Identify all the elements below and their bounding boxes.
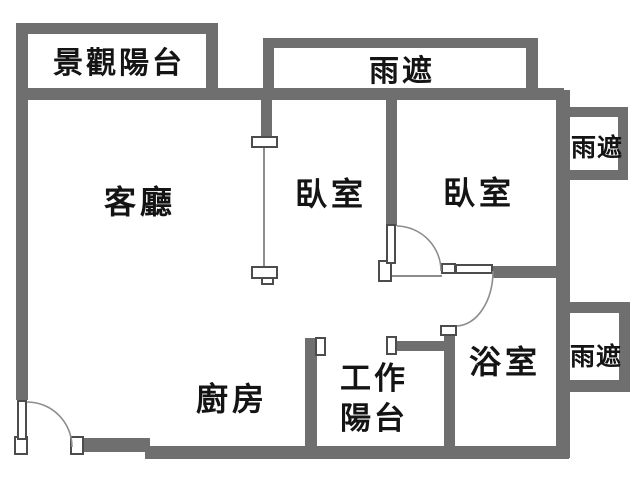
floor-plan: 景觀陽台 雨遮 客廳 臥室 臥室 雨遮 雨遮 浴室 廚房 工作 陽台 (0, 0, 640, 480)
room-label-work-balcony-line1: 工作 (340, 359, 408, 399)
wall-bottom-left (82, 438, 150, 452)
bathroom-wall-top-jamb (440, 325, 457, 336)
wall-balcony-top (16, 23, 218, 34)
bathroom-door-arc (457, 271, 493, 326)
wall-canopy-r2-bottom (566, 380, 630, 392)
kitchen-divider-top-jamb (315, 337, 326, 356)
work-balcony-wall-jamb (386, 336, 397, 355)
room-label-rain-canopy-right-lower: 雨遮 (570, 337, 622, 373)
entrance-door-leaf (17, 400, 27, 440)
wall-bedroom-divider (386, 100, 397, 226)
entrance-door-arc (27, 402, 72, 447)
room-label-bedroom-left: 臥室 (295, 169, 367, 215)
entrance-door-jamb-right (70, 436, 84, 455)
wall-balcony-right (206, 23, 218, 93)
living-partition-cap-notch (261, 277, 274, 285)
wall-bathroom-west (444, 335, 455, 446)
wall-living-divider-stub (261, 100, 272, 138)
room-label-work-balcony-line2: 陽台 (340, 399, 408, 439)
bedroom-door-arc (397, 226, 441, 271)
wall-top (16, 88, 564, 100)
wall-bathroom-north (493, 266, 557, 278)
room-label-rain-canopy-right-upper: 雨遮 (571, 128, 623, 164)
living-partition-line (263, 147, 265, 267)
hall-door-jamb (441, 263, 456, 274)
bedroom-door-leaf (386, 224, 396, 264)
wall-canopy-top-right (526, 38, 538, 93)
wall-right (556, 90, 570, 458)
room-label-bathroom: 浴室 (469, 337, 541, 383)
wall-canopy-r1-bottom (570, 170, 628, 180)
living-partition-cap-top (251, 136, 278, 148)
room-label-view-balcony: 景觀陽台 (53, 38, 185, 82)
bathroom-door-leaf (455, 264, 493, 274)
bedroom-door-threshold-line (392, 275, 442, 277)
wall-bottom-right (145, 446, 569, 459)
room-label-bedroom-right: 臥室 (443, 168, 515, 214)
room-label-work-balcony: 工作 陽台 (340, 359, 408, 439)
wall-work-balcony-north (396, 341, 450, 351)
room-label-kitchen: 廚房 (196, 374, 268, 420)
room-label-rain-canopy-top: 雨遮 (369, 46, 435, 90)
room-label-living-room: 客廳 (104, 177, 176, 223)
wall-left (16, 23, 28, 400)
